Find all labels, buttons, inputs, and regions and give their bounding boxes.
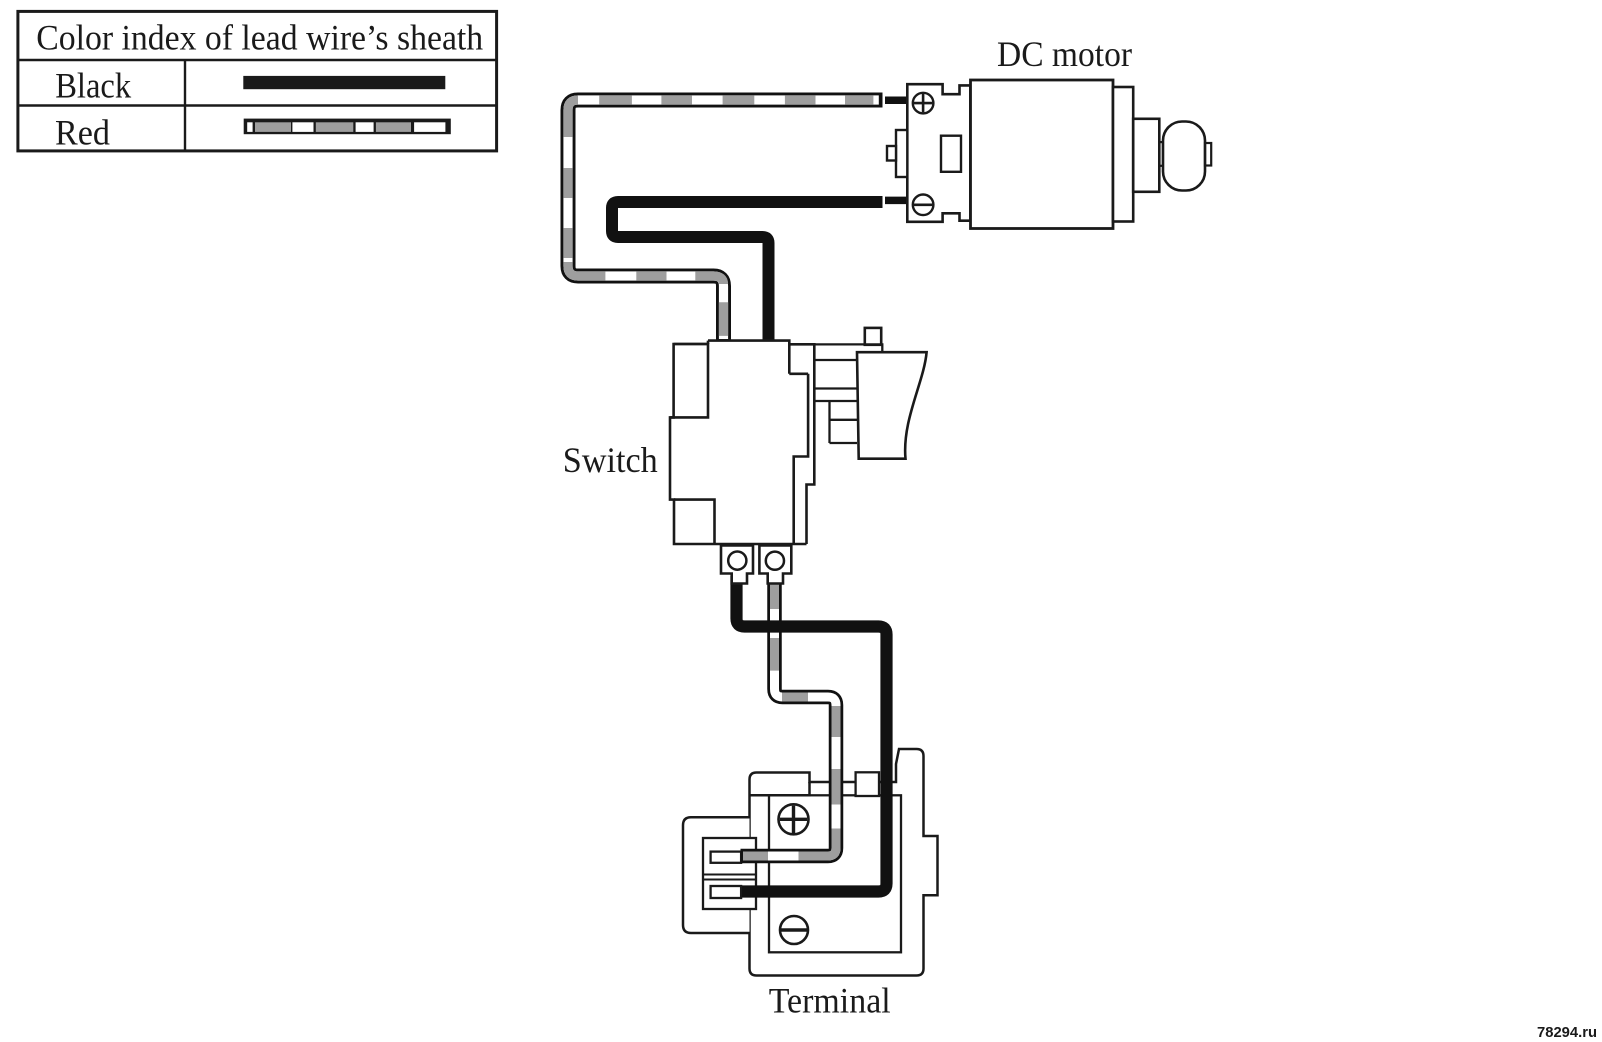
svg-text:Black: Black — [55, 65, 131, 105]
svg-text:DC motor: DC motor — [997, 34, 1132, 74]
svg-text:Switch: Switch — [563, 440, 658, 480]
svg-text:Terminal: Terminal — [769, 981, 891, 1021]
svg-text:Color index of lead wire’s she: Color index of lead wire’s sheath — [36, 18, 483, 58]
svg-text:78294.ru: 78294.ru — [1537, 1024, 1597, 1041]
svg-text:Red: Red — [55, 112, 110, 152]
